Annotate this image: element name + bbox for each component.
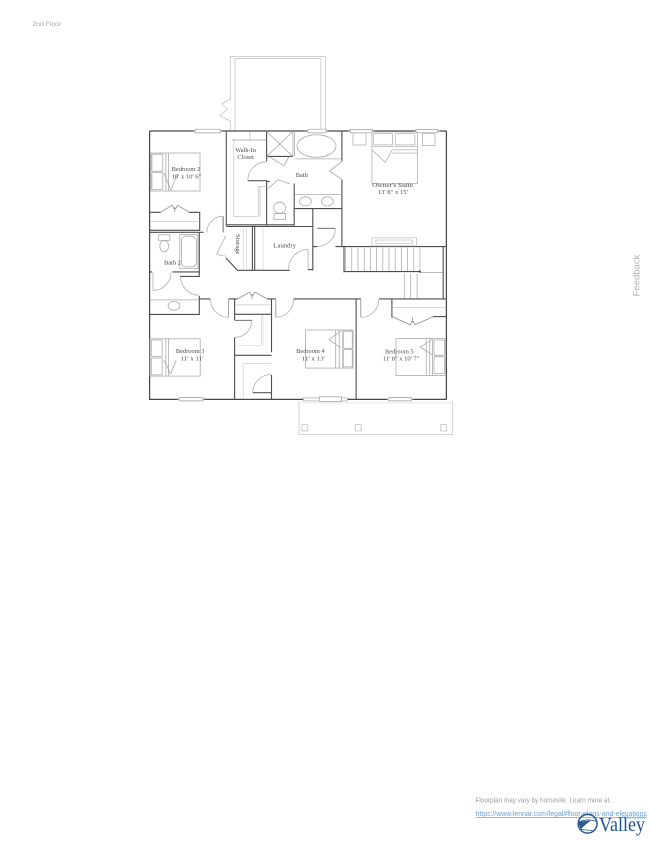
svg-text:Walk-In: Walk-In (235, 147, 257, 154)
svg-text:Laundry: Laundry (273, 243, 296, 250)
svg-text:Storage: Storage (234, 234, 241, 255)
svg-text:Bedroom 5: Bedroom 5 (385, 348, 414, 355)
svg-text:Bedroom 3: Bedroom 3 (176, 348, 205, 355)
svg-text:Bedroom 4: Bedroom 4 (296, 348, 325, 355)
svg-text:Feedback: Feedback (632, 254, 643, 296)
svg-text:13' 8" x 15': 13' 8" x 15' (378, 189, 408, 196)
svg-text:2nd Floor: 2nd Floor (33, 21, 62, 28)
svg-text:Bath 2: Bath 2 (164, 259, 181, 266)
svg-text:Bath: Bath (296, 172, 309, 179)
svg-text:11' x 11': 11' x 11' (181, 355, 204, 362)
svg-text:11' x 13': 11' x 13' (302, 355, 325, 362)
svg-text:Bedroom 2: Bedroom 2 (172, 166, 201, 173)
svg-text:Floorplan may vary by homesite: Floorplan may vary by homesite. Learn mo… (476, 798, 612, 805)
svg-text:11' 8" x 10' 7": 11' 8" x 10' 7" (383, 356, 420, 363)
svg-text:Closet: Closet (237, 154, 254, 161)
svg-text:Owner's Suite: Owner's Suite (372, 182, 413, 189)
svg-text:mls.com: mls.com (622, 814, 646, 821)
svg-text:10' x 10' 6": 10' x 10' 6" (172, 173, 202, 180)
